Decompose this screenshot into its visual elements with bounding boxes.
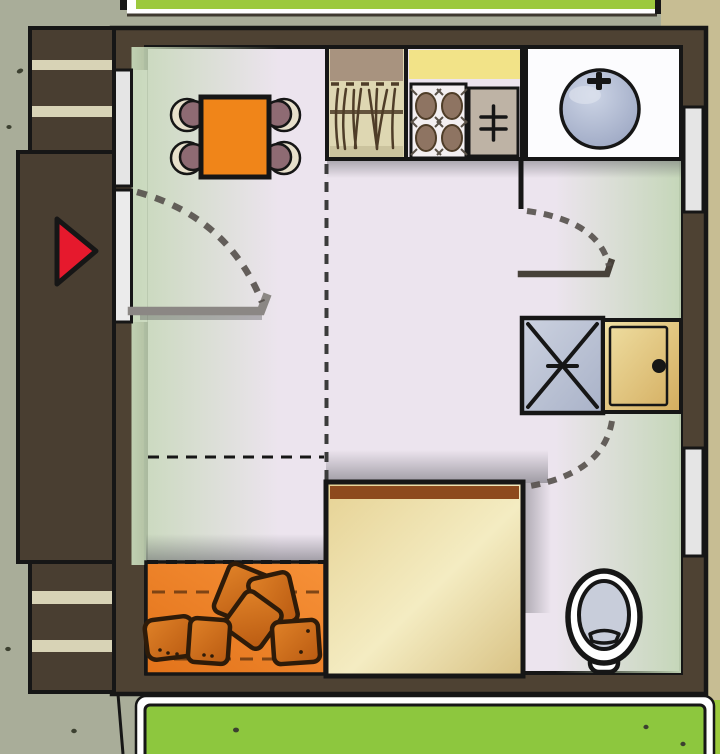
curb-white (136, 9, 657, 14)
step-stripe (32, 591, 112, 604)
cabinet-panel[interactable] (603, 320, 681, 412)
porch (18, 28, 114, 692)
entry-landing (18, 152, 114, 562)
entry-steps-top (30, 28, 114, 152)
building-roof (145, 705, 705, 754)
right-window-bottom[interactable] (684, 448, 703, 556)
floor-cushion[interactable] (272, 619, 321, 664)
top-lawn-strip (120, 0, 661, 17)
bed[interactable] (326, 482, 523, 676)
curb-end-left (120, 0, 128, 10)
bed-shadow-top (326, 450, 548, 483)
counter-stove-unit (406, 47, 522, 159)
floor-plan-stage (0, 0, 720, 754)
bed-shadow-right (523, 483, 551, 613)
tall-kitchen-cabinet[interactable] (327, 47, 406, 159)
curb-shadow-line (127, 14, 657, 17)
shower[interactable] (522, 318, 603, 413)
floor-cushion[interactable] (188, 618, 231, 665)
bathroom-cabinet[interactable] (603, 320, 681, 412)
lawn-strip (136, 0, 655, 9)
toilet-bowl (579, 581, 629, 649)
entry-steps-bottom (30, 562, 114, 692)
kitchen-counter[interactable] (409, 50, 520, 79)
entry-window[interactable] (115, 70, 132, 186)
rug-shadow-top (146, 534, 326, 562)
entrance-doorway[interactable] (115, 190, 132, 322)
landing-block (18, 152, 114, 562)
knob-dot[interactable] (652, 359, 666, 373)
cabinet-top-band (330, 49, 403, 81)
step-stripe (32, 106, 112, 117)
cabinet-rail (330, 110, 403, 114)
right-window-top[interactable] (684, 107, 703, 212)
dining-table[interactable] (201, 97, 269, 177)
steps-block (30, 562, 114, 692)
sink-room (526, 47, 681, 159)
curb-end-right (655, 0, 661, 14)
step-stripe (32, 60, 112, 70)
bed-headboard (330, 486, 519, 499)
neighbor-building (136, 696, 714, 754)
kitchen-row (327, 46, 681, 160)
steps-block (30, 28, 114, 152)
kitchen-sink[interactable] (561, 70, 639, 148)
cabinet-shadow (327, 159, 681, 178)
cushion-rug[interactable] (144, 562, 325, 674)
bed-mattress[interactable] (326, 482, 523, 676)
step-stripe (32, 640, 112, 652)
